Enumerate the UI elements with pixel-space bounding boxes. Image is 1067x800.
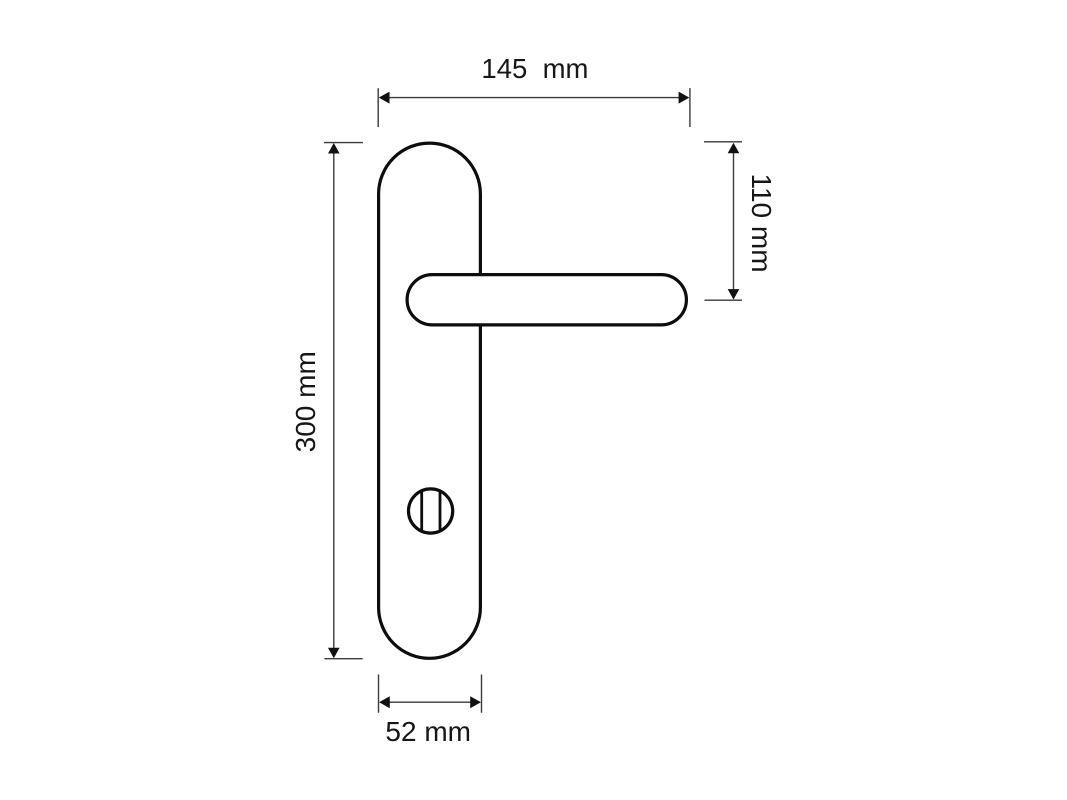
svg-text:52 mm: 52 mm	[385, 716, 471, 747]
svg-text:110 mm: 110 mm	[746, 173, 777, 272]
svg-text:145 mm: 145 mm	[481, 53, 588, 84]
svg-text:300 mm: 300 mm	[290, 351, 321, 452]
